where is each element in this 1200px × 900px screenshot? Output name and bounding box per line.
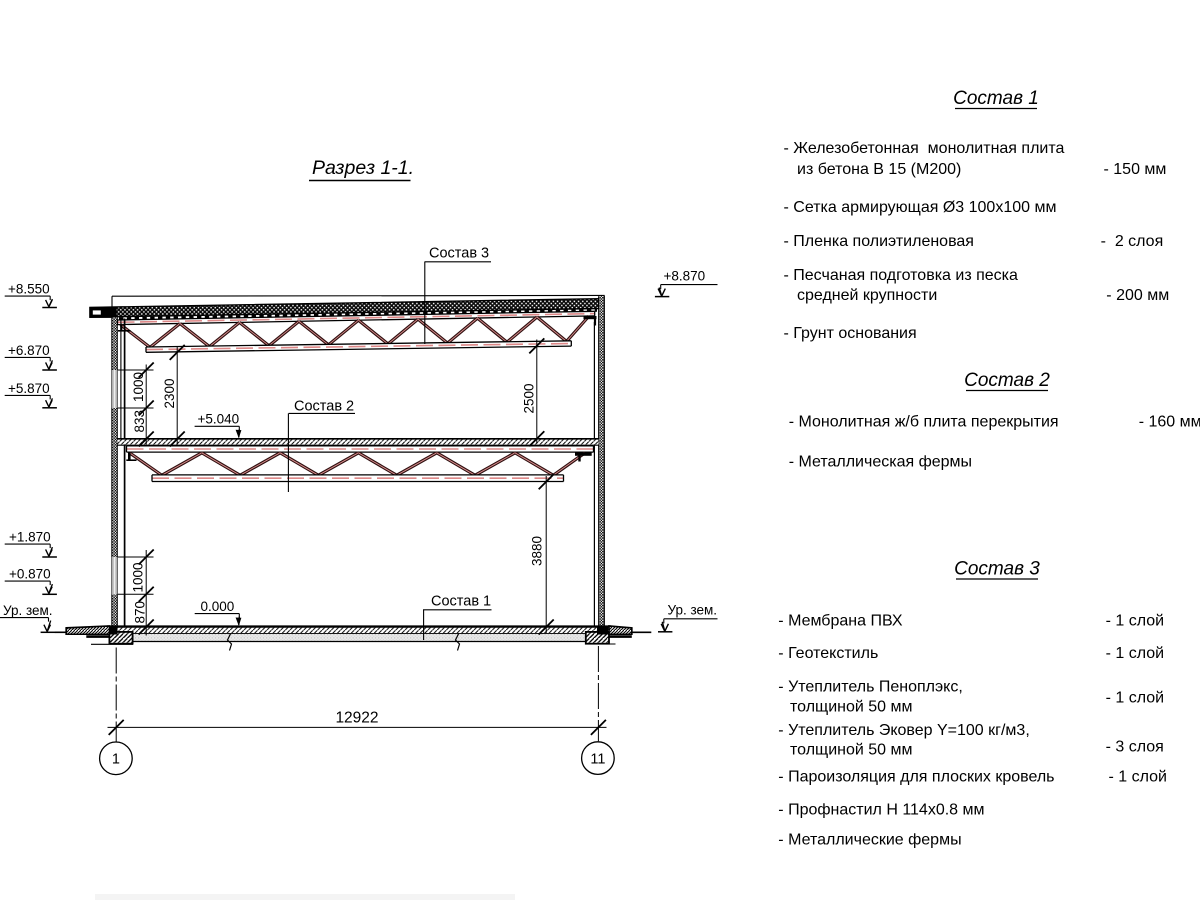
svg-text:Состав 2: Состав 2 (964, 370, 1050, 391)
svg-text:Ур. зем.: Ур. зем. (3, 603, 53, 618)
svg-text:- 1 слой: - 1 слой (1106, 645, 1164, 662)
svg-text:- 1 слой: - 1 слой (1106, 613, 1164, 630)
svg-text:- Железобетонная монолитная п: - Железобетонная монолитная плита (784, 140, 1065, 157)
svg-text:1000: 1000 (131, 562, 146, 592)
svg-text:- Утеплитель Пеноплэкс,: - Утеплитель Пеноплэкс, (778, 679, 962, 696)
svg-text:Ур. зем.: Ур. зем. (668, 603, 718, 618)
svg-text:- Сетка армирующая Ø3 100х100: - Сетка армирующая Ø3 100х100 мм (784, 199, 1057, 216)
svg-text:+8.550: +8.550 (8, 282, 50, 297)
svg-text:Состав 3: Состав 3 (954, 559, 1040, 580)
svg-text:- 200 мм: - 200 мм (1106, 287, 1169, 304)
svg-text:- Утеплитель Эковер Y=100 кг/м: - Утеплитель Эковер Y=100 кг/м3, (778, 722, 1029, 739)
svg-text:из бетона В 15 (М200): из бетона В 15 (М200) (797, 161, 961, 178)
svg-text:- Грунт основания: - Грунт основания (784, 325, 917, 342)
svg-text:+1.870: +1.870 (9, 530, 51, 545)
svg-text:1000: 1000 (131, 372, 146, 402)
svg-text:Состав 1: Состав 1 (953, 88, 1039, 109)
svg-text:толщиной 50 мм: толщиной 50 мм (790, 742, 913, 759)
svg-text:- Монолитная ж/б плита перекры: - Монолитная ж/б плита перекрытия (789, 414, 1059, 431)
svg-text:Разрез 1-1.: Разрез 1-1. (312, 157, 414, 179)
svg-text:+6.870: +6.870 (8, 343, 50, 358)
svg-text:Состав 1: Состав 1 (431, 594, 491, 610)
svg-text:- 1 слой: - 1 слой (1109, 769, 1167, 786)
svg-text:870: 870 (133, 601, 148, 624)
svg-text:- Геотекстиль: - Геотекстиль (778, 645, 878, 662)
svg-text:12922: 12922 (335, 710, 378, 727)
svg-text:11: 11 (590, 751, 605, 767)
svg-text:- Профнастил Н 114х0.8 мм: - Профнастил Н 114х0.8 мм (778, 802, 984, 819)
svg-text:- 160 мм: - 160 мм (1139, 414, 1200, 431)
svg-text:3880: 3880 (530, 536, 545, 566)
svg-text:2300: 2300 (162, 378, 177, 408)
svg-text:- 2 слоя: - 2 слоя (1101, 233, 1164, 250)
svg-text:833: 833 (132, 410, 147, 433)
svg-text:- Мембрана ПВХ: - Мембрана ПВХ (778, 613, 903, 630)
svg-text:средней крупности: средней крупности (797, 287, 937, 304)
svg-text:+5.870: +5.870 (8, 381, 50, 396)
svg-text:толщиной 50 мм: толщиной 50 мм (790, 699, 913, 716)
svg-text:Состав 2: Состав 2 (294, 399, 354, 415)
svg-text:Состав 3: Состав 3 (429, 246, 489, 262)
svg-text:+0.870: +0.870 (9, 567, 51, 582)
svg-text:- 150 мм: - 150 мм (1104, 161, 1167, 178)
svg-text:- Пленка полиэтиленовая: - Пленка полиэтиленовая (784, 233, 974, 250)
svg-text:0.000: 0.000 (201, 599, 235, 614)
svg-text:- 3 слоя: - 3 слоя (1106, 739, 1164, 756)
svg-text:- Металлическая фермы: - Металлическая фермы (789, 454, 972, 471)
svg-text:- Песчаная подготовка из песка: - Песчаная подготовка из песка (784, 267, 1019, 284)
svg-text:2500: 2500 (522, 383, 537, 413)
svg-text:+5.040: +5.040 (198, 412, 240, 427)
svg-text:+8.870: +8.870 (664, 269, 706, 284)
svg-text:- Металлические фермы: - Металлические фермы (778, 832, 961, 849)
svg-text:1: 1 (112, 752, 120, 768)
svg-text:- 1 слой: - 1 слой (1106, 690, 1164, 707)
svg-text:- Пароизоляция для плоских кро: - Пароизоляция для плоских кровель (778, 769, 1054, 786)
